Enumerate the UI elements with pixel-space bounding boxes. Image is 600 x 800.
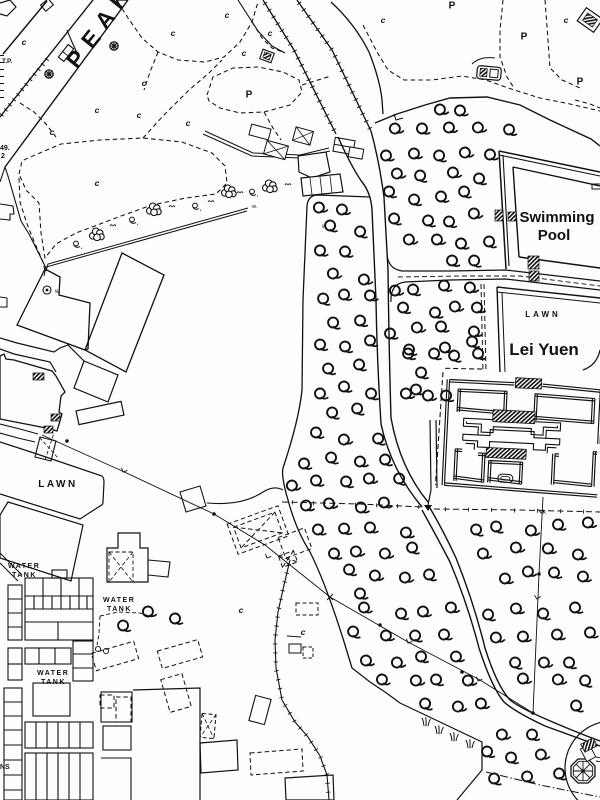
svg-text:LAWN: LAWN <box>525 310 561 319</box>
svg-text:c: c <box>171 28 176 38</box>
svg-text:P: P <box>577 77 584 88</box>
svg-text:c: c <box>137 110 142 120</box>
svg-text:c: c <box>564 15 569 25</box>
svg-text:Lei Yuen: Lei Yuen <box>509 340 579 359</box>
svg-text:c: c <box>301 627 306 637</box>
svg-text:NS: NS <box>0 764 10 771</box>
svg-text:c: c <box>95 178 100 188</box>
svg-text:c: c <box>186 118 191 128</box>
svg-text:49.: 49. <box>0 145 10 152</box>
svg-text:c: c <box>242 48 247 58</box>
svg-text:c: c <box>50 127 55 137</box>
svg-text:w.: w. <box>321 224 328 230</box>
svg-text:c: c <box>381 15 386 25</box>
svg-text:WATER: WATER <box>103 597 135 604</box>
svg-text:Swimming: Swimming <box>519 209 594 226</box>
svg-text:P: P <box>246 90 253 101</box>
svg-text:2: 2 <box>1 153 5 160</box>
svg-text:c: c <box>239 605 244 615</box>
svg-text:T.P.: T.P. <box>2 58 13 65</box>
svg-text:c: c <box>268 28 273 38</box>
svg-text:c: c <box>142 78 147 88</box>
svg-text:w.: w. <box>251 204 258 210</box>
svg-text:Pool: Pool <box>538 227 571 244</box>
svg-text:P: P <box>449 1 456 12</box>
svg-text:P: P <box>521 32 528 43</box>
svg-text:LAWN: LAWN <box>38 479 77 490</box>
svg-text:c: c <box>95 105 100 115</box>
svg-text:c: c <box>22 37 27 47</box>
svg-text:WATER: WATER <box>37 670 69 677</box>
svg-text:c: c <box>225 10 230 20</box>
